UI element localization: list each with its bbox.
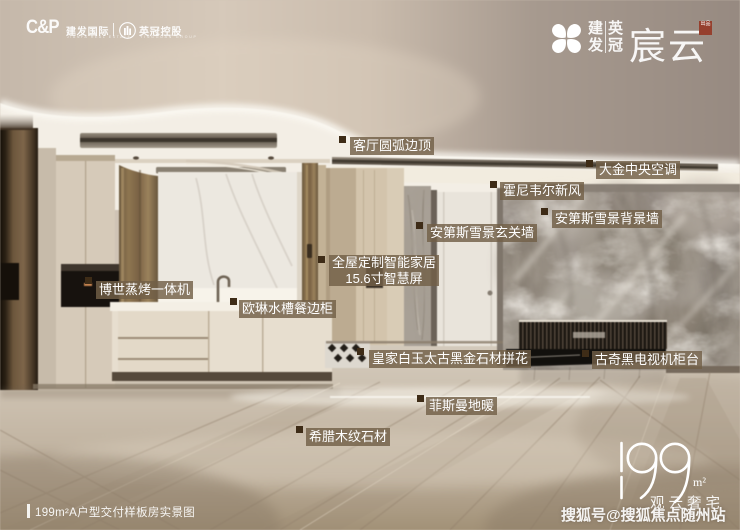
- svg-text:m²: m²: [693, 475, 706, 489]
